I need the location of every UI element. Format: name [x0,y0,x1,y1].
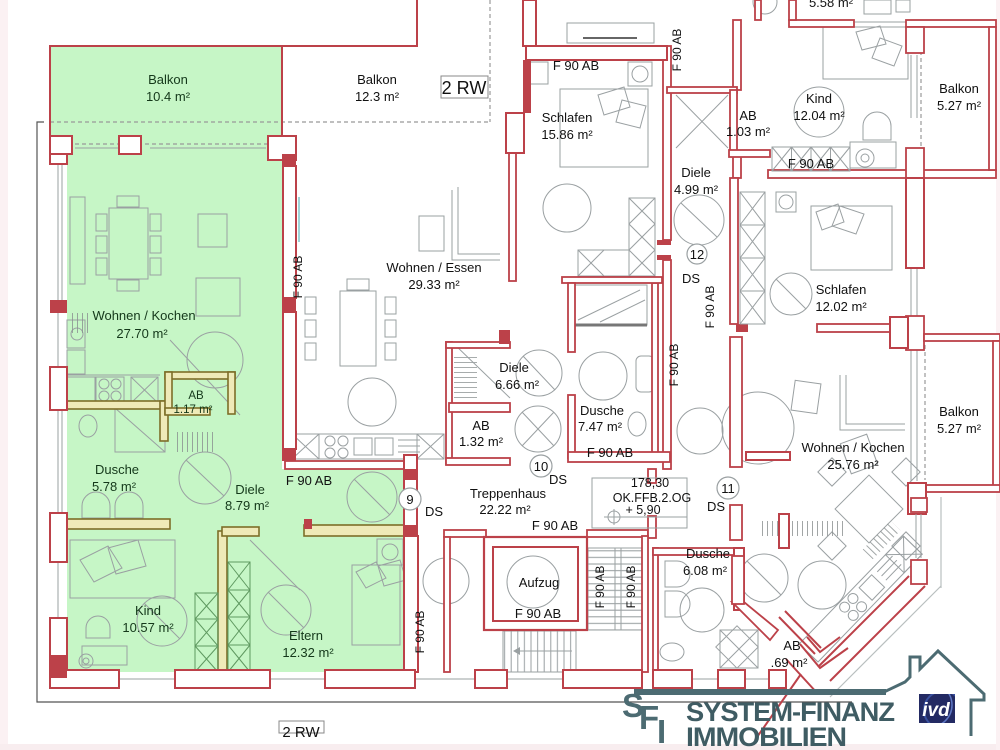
svg-text:11: 11 [721,481,735,496]
svg-text:Eltern: Eltern [289,628,323,643]
svg-text:DS: DS [682,271,700,286]
svg-text:7.47 m²: 7.47 m² [578,419,623,434]
svg-text:.69 m²: .69 m² [771,655,809,670]
svg-text:5.27 m²: 5.27 m² [937,421,982,436]
svg-text:F 90 AB: F 90 AB [593,566,607,609]
svg-text:IMMOBILIEN: IMMOBILIEN [686,722,846,750]
svg-text:2 RW: 2 RW [442,78,487,98]
svg-text:25.76 m²: 25.76 m² [827,457,879,472]
svg-text:6.08 m²: 6.08 m² [683,563,728,578]
svg-text:Schlafen: Schlafen [542,110,593,125]
svg-text:1.32 m²: 1.32 m² [459,434,504,449]
svg-text:10.57 m²: 10.57 m² [122,620,174,635]
svg-text:F 90 AB: F 90 AB [286,473,332,488]
svg-text:Schlafen: Schlafen [816,282,867,297]
svg-text:AB: AB [472,418,489,433]
svg-text:Kind: Kind [806,91,832,106]
svg-text:F 90 AB: F 90 AB [515,606,561,621]
svg-text:12.02 m²: 12.02 m² [815,299,867,314]
svg-text:F 90 AB: F 90 AB [667,344,681,387]
svg-text:Dusche: Dusche [95,462,139,477]
svg-text:Diele: Diele [235,482,265,497]
svg-text:1.17 m²: 1.17 m² [174,404,213,416]
svg-text:F 90 AB: F 90 AB [413,611,427,654]
svg-text:4.99 m²: 4.99 m² [674,182,719,197]
svg-text:Kind: Kind [135,603,161,618]
svg-text:DS: DS [549,472,567,487]
svg-text:AB: AB [188,390,204,402]
svg-text:+ 5,90: + 5,90 [625,503,660,517]
svg-text:29.33 m²: 29.33 m² [408,277,460,292]
svg-text:F 90 AB: F 90 AB [291,256,305,299]
svg-text:DS: DS [707,499,725,514]
svg-text:9: 9 [406,492,413,507]
svg-text:F 90 AB: F 90 AB [624,566,638,609]
svg-text:Balkon: Balkon [939,404,979,419]
svg-text:Diele: Diele [499,360,529,375]
svg-text:Diele: Diele [681,165,711,180]
svg-text:Balkon: Balkon [148,72,188,87]
svg-text:Dusche: Dusche [580,403,624,418]
svg-text:10.4 m²: 10.4 m² [146,89,191,104]
svg-text:1.03 m²: 1.03 m² [726,124,771,139]
svg-text:Wohnen / Kochen: Wohnen / Kochen [801,440,904,455]
svg-text:F 90 AB: F 90 AB [788,156,834,171]
svg-text:178,30: 178,30 [631,476,669,490]
svg-text:I: I [657,713,666,750]
svg-text:F 90 AB: F 90 AB [532,518,578,533]
svg-text:F 90 AB: F 90 AB [553,58,599,73]
svg-text:12.32 m²: 12.32 m² [282,645,334,660]
svg-text:5.78 m²: 5.78 m² [92,479,137,494]
svg-text:12.3 m²: 12.3 m² [355,89,400,104]
svg-text:Dusche: Dusche [686,546,730,561]
svg-text:Balkon: Balkon [939,81,979,96]
svg-text:F 90 AB: F 90 AB [587,445,633,460]
svg-text:F 90 AB: F 90 AB [670,29,684,72]
svg-text:15.86 m²: 15.86 m² [541,127,593,142]
svg-text:F 90 AB: F 90 AB [703,286,717,329]
svg-text:12: 12 [690,247,704,262]
svg-text:22.22 m²: 22.22 m² [479,502,531,517]
svg-text:DS: DS [425,504,443,519]
svg-text:ivd: ivd [922,700,950,721]
svg-text:Treppenhaus: Treppenhaus [470,486,547,501]
svg-text:2 RW: 2 RW [282,724,320,741]
svg-text:Aufzug: Aufzug [519,575,559,590]
svg-text:5.58 m²: 5.58 m² [809,0,854,10]
svg-text:12.04 m²: 12.04 m² [793,108,845,123]
svg-text:5.27 m²: 5.27 m² [937,98,982,113]
svg-text:Balkon: Balkon [357,72,397,87]
svg-text:8.79 m²: 8.79 m² [225,498,270,513]
svg-text:Wohnen / Kochen: Wohnen / Kochen [92,308,195,323]
svg-text:6.66 m²: 6.66 m² [495,377,540,392]
svg-text:AB: AB [783,638,800,653]
svg-text:10: 10 [534,459,548,474]
svg-text:Wohnen / Essen: Wohnen / Essen [386,260,481,275]
svg-text:27.70 m²: 27.70 m² [116,326,168,341]
svg-text:AB: AB [739,108,756,123]
